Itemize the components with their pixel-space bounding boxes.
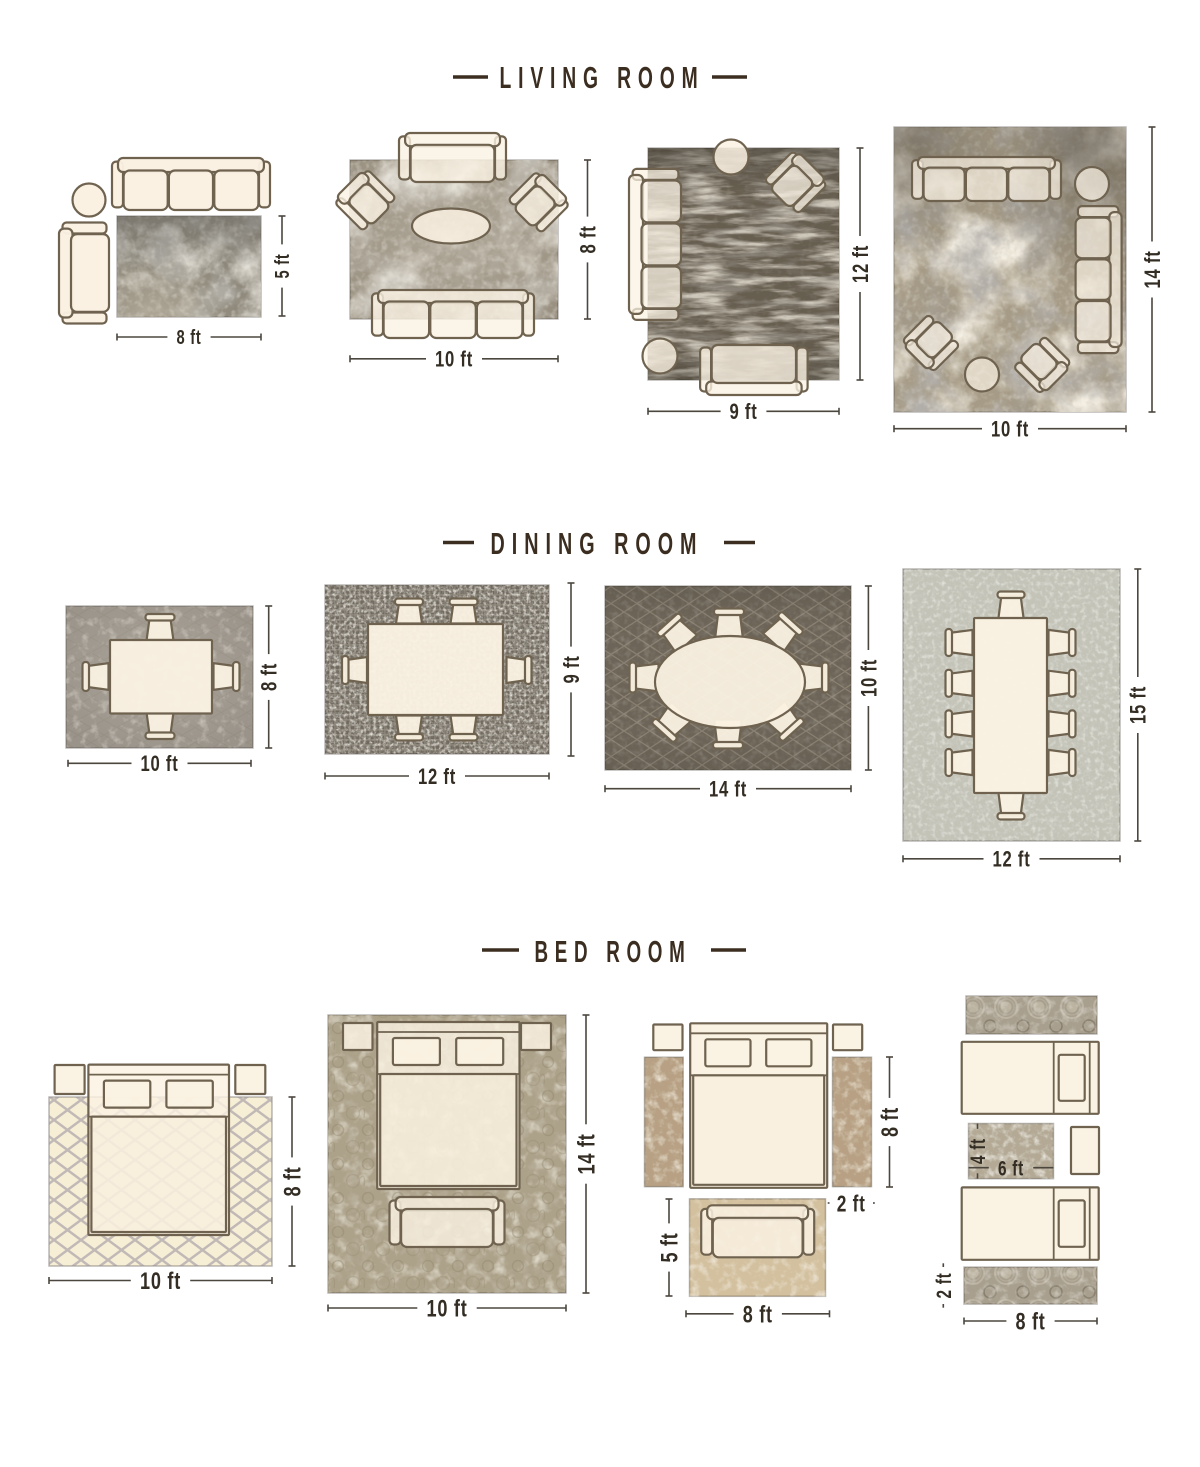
svg-text:14 ft: 14 ft [1140,251,1165,289]
svg-text:8 ft: 8 ft [575,226,600,254]
svg-text:8 ft: 8 ft [877,1107,904,1137]
svg-text:5 ft: 5 ft [272,254,294,279]
svg-text:2 ft: 2 ft [933,1273,956,1299]
svg-text:8 ft: 8 ft [743,1301,773,1328]
svg-text:10 ft: 10 ft [427,1296,468,1323]
svg-text:LIVING ROOM: LIVING ROOM [500,60,705,95]
svg-text:15 ft: 15 ft [1126,686,1151,724]
svg-text:8 ft: 8 ft [280,1167,307,1197]
svg-text:BED ROOM: BED ROOM [535,934,692,969]
svg-text:DINING ROOM: DINING ROOM [491,526,704,561]
svg-text:8 ft: 8 ft [177,327,202,349]
svg-text:14 ft: 14 ft [574,1134,601,1175]
svg-text:14 ft: 14 ft [709,777,747,802]
svg-text:8 ft: 8 ft [1016,1309,1046,1336]
svg-text:9 ft: 9 ft [730,399,758,424]
svg-text:2 ft: 2 ft [837,1190,866,1216]
svg-text:4 ft: 4 ft [967,1138,990,1164]
svg-text:12 ft: 12 ft [993,847,1031,872]
svg-text:10 ft: 10 ft [435,347,473,372]
svg-text:10 ft: 10 ft [140,1268,181,1295]
svg-text:10 ft: 10 ft [141,751,179,776]
svg-text:10 ft: 10 ft [856,659,881,697]
svg-text:5 ft: 5 ft [657,1233,684,1263]
svg-text:12 ft: 12 ft [418,764,456,789]
svg-text:6 ft: 6 ft [998,1157,1024,1180]
svg-text:9 ft: 9 ft [559,656,584,684]
svg-text:8 ft: 8 ft [257,663,282,691]
svg-text:12 ft: 12 ft [848,245,873,283]
svg-text:10 ft: 10 ft [991,417,1029,442]
